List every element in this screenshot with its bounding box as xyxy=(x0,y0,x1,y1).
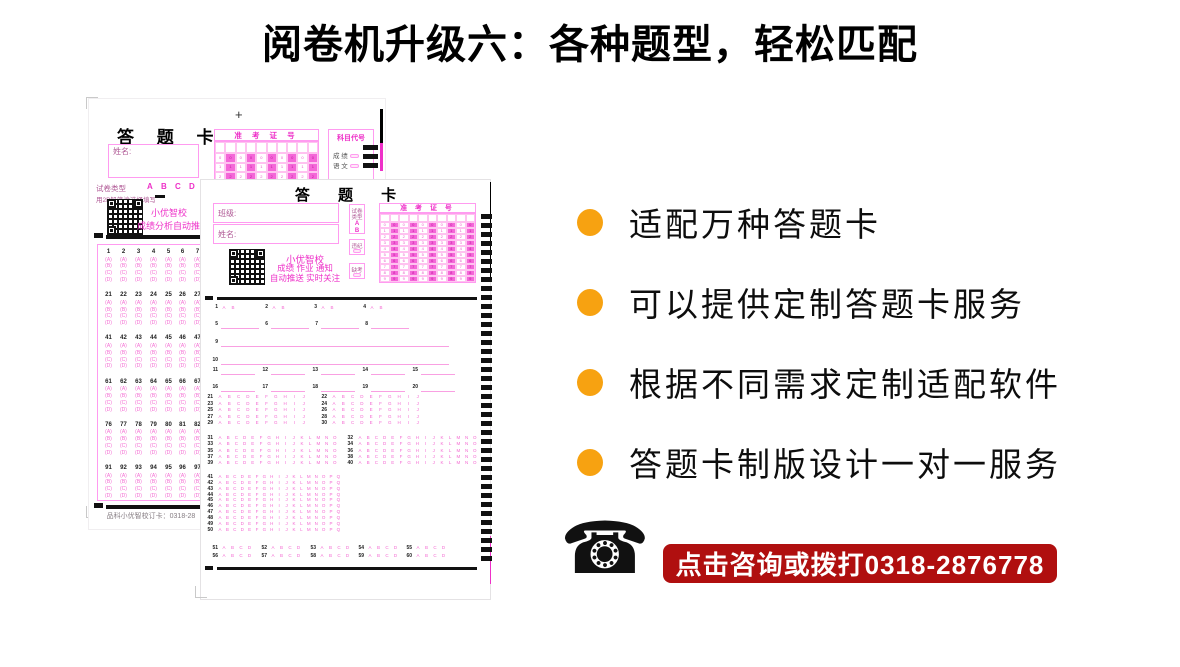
bubble-letter: G xyxy=(386,408,394,413)
bubble-letter: Q xyxy=(334,487,342,492)
bubble-letter: (A) xyxy=(132,387,145,392)
bubble-letter: (A) xyxy=(132,344,145,349)
bubble-letter: (C) xyxy=(132,444,145,449)
bubble-letter: (C) xyxy=(117,314,130,319)
bubble-letter: J xyxy=(300,421,308,426)
bubble-letter: D xyxy=(358,415,366,420)
bubble-letter: (C) xyxy=(117,444,130,449)
bubble-letter: A xyxy=(216,461,224,466)
bubble-letter: I xyxy=(282,442,290,447)
bubble-letter: L xyxy=(446,436,454,441)
bubble-letter: C xyxy=(372,461,380,466)
bubble-letter: Q xyxy=(334,475,342,480)
timing-mark xyxy=(363,163,378,168)
bubble-letter: I xyxy=(422,442,430,447)
ticket-digit-cell xyxy=(215,142,225,153)
paper-type-option: A xyxy=(147,183,153,191)
bubble-letter: E xyxy=(367,408,375,413)
bubble-letter: J xyxy=(414,415,422,420)
bubble-letter: H xyxy=(413,442,421,447)
bubble-letter: A xyxy=(356,449,364,454)
qr-finder xyxy=(134,199,143,208)
bubble-letter: D xyxy=(244,415,252,420)
question-number: 26 xyxy=(176,292,189,298)
bubble-letter: I xyxy=(290,421,298,426)
bubble-letter: (C) xyxy=(147,358,160,363)
bubble-letter: (B) xyxy=(117,394,130,399)
question-number: 46 xyxy=(176,335,189,341)
question-number: 14 xyxy=(359,368,368,373)
bubble-letter: D xyxy=(392,554,400,559)
bubble-letter: (B) xyxy=(162,264,175,269)
bubble-letter: E xyxy=(389,436,397,441)
question-number: 43 xyxy=(132,335,145,341)
bubble-letter: G xyxy=(405,449,413,454)
bubble-letter: K xyxy=(298,461,306,466)
bubble-letter: (B) xyxy=(162,308,175,313)
question-number: 52 xyxy=(258,546,267,551)
bubble-letter: (C) xyxy=(162,271,175,276)
bubble-letter: A xyxy=(366,554,374,559)
question-number: 20 xyxy=(409,385,418,390)
bubble-letter: G xyxy=(265,455,273,460)
bubble-letter: (B) xyxy=(162,394,175,399)
bubble-letter: I xyxy=(282,461,290,466)
bubble-letter: G xyxy=(386,402,394,407)
qr-caption: 小优智校 xyxy=(151,206,187,219)
bubble-letter: N xyxy=(463,461,471,466)
question-number: 7 xyxy=(309,322,318,327)
bubble-letter: K xyxy=(298,436,306,441)
answer-blank-line xyxy=(421,374,455,375)
bullet-dot-icon xyxy=(577,209,603,236)
ticket-number-header: 准 考 证 号 xyxy=(214,129,319,141)
bubble-letter: (B) xyxy=(102,480,115,485)
bubble-letter: E xyxy=(253,408,261,413)
bubble-letter: H xyxy=(395,408,403,413)
bubble-letter: A xyxy=(330,408,338,413)
bubble-letter: D xyxy=(244,402,252,407)
question-number: 95 xyxy=(162,465,175,471)
bubble-letter: Q xyxy=(334,510,342,515)
answer-blank-line xyxy=(221,346,449,347)
subject-bubble xyxy=(350,164,359,169)
feature-list: 适配万种答题卡 可以提供定制答题卡服务 根据不同需求定制适配软件 答题卡制版设计… xyxy=(577,205,1061,525)
bubble-letter: F xyxy=(397,442,405,447)
question-number: 79 xyxy=(147,422,160,428)
bubble-letter: (D) xyxy=(162,278,175,283)
bubble-letter: (A) xyxy=(162,430,175,435)
answer-blank-line xyxy=(221,364,449,365)
bubble-letter: I xyxy=(290,395,298,400)
bubble-letter: F xyxy=(263,421,271,426)
paper-type-option: C xyxy=(175,183,181,191)
bubble-letter: (C) xyxy=(132,271,145,276)
answer-blank-line xyxy=(371,374,405,375)
question-number: 12 xyxy=(259,368,268,373)
question-number: 15 xyxy=(409,368,418,373)
bubble-letter: D xyxy=(241,442,249,447)
bubble-letter: D xyxy=(358,408,366,413)
question-number: 91 xyxy=(102,465,115,471)
bubble-letter: (C) xyxy=(102,401,115,406)
bubble-letter: D xyxy=(241,455,249,460)
bubble-letter: I xyxy=(290,408,298,413)
bubble-letter: Q xyxy=(334,528,342,533)
bubble-letter: E xyxy=(249,442,257,447)
ticket-digit-cell: 1 xyxy=(308,163,318,173)
bubble-letter: C xyxy=(349,402,357,407)
bubble-letter: (D) xyxy=(102,451,115,456)
bubble-letter: (B) xyxy=(102,394,115,399)
bubble-letter: O xyxy=(471,442,479,447)
bubble-letter: D xyxy=(344,554,352,559)
bubble-letter: D xyxy=(295,546,303,551)
bubble-letter: (B) xyxy=(176,351,189,356)
bubble-letter: F xyxy=(257,436,265,441)
bubble-letter: (C) xyxy=(132,487,145,492)
bubble-letter: B xyxy=(375,546,383,551)
paper-type-option: B xyxy=(161,183,167,191)
bubble-letter: F xyxy=(377,402,385,407)
question-number: 38 xyxy=(344,455,353,460)
bubble-letter: (A) xyxy=(176,474,189,479)
bubble-letter: (C) xyxy=(102,487,115,492)
bubble-letter: J xyxy=(430,442,438,447)
bubble-letter: I xyxy=(404,421,412,426)
bubble-letter: (B) xyxy=(102,264,115,269)
bubble-letter: (D) xyxy=(117,494,130,499)
bubble-letter: A xyxy=(269,546,277,551)
bubble-letter: Q xyxy=(334,481,342,486)
bubble-letter: F xyxy=(263,408,271,413)
bubble-letter: K xyxy=(438,442,446,447)
bubble-letter: B xyxy=(224,461,232,466)
bubble-letter: (D) xyxy=(147,494,160,499)
bubble-letter: (C) xyxy=(162,314,175,319)
bubble-letter: (D) xyxy=(102,364,115,369)
bubble-letter: A xyxy=(216,421,224,426)
bubble-letter: (D) xyxy=(147,321,160,326)
telephone-icon[interactable]: ☎ xyxy=(560,512,650,584)
bubble-letter: (B) xyxy=(176,394,189,399)
ticket-digit-cell: 1 xyxy=(246,163,256,173)
ticket-digit-cell: 0 xyxy=(256,153,266,163)
bubble-letter: (B) xyxy=(147,394,160,399)
bubble-letter: (D) xyxy=(117,321,130,326)
bubble-letter: E xyxy=(367,415,375,420)
question-number: 93 xyxy=(132,465,145,471)
bubble-letter: K xyxy=(438,436,446,441)
bubble-letter: O xyxy=(471,455,479,460)
bubble-letter: N xyxy=(323,455,331,460)
bubble-letter: D xyxy=(381,436,389,441)
question-number: 56 xyxy=(209,554,218,559)
answer-blank-line xyxy=(321,391,355,392)
ticket-digit-cell: 1 xyxy=(236,163,246,173)
question-number: 94 xyxy=(147,465,160,471)
bubble-letter: J xyxy=(300,402,308,407)
bubble-letter: N xyxy=(323,436,331,441)
bubble-letter: M xyxy=(454,436,462,441)
bubble-letter: C xyxy=(349,421,357,426)
bubble-letter: J xyxy=(430,436,438,441)
timing-mark xyxy=(363,145,378,150)
bubble-letter: C xyxy=(372,455,380,460)
bubble-letter: D xyxy=(344,546,352,551)
question-number: 6 xyxy=(259,322,268,327)
bubble-letter: (D) xyxy=(102,408,115,413)
bubble-letter: D xyxy=(358,395,366,400)
question-number: 65 xyxy=(162,379,175,385)
bubble-letter: A xyxy=(216,402,224,407)
bubble-letter: D xyxy=(358,402,366,407)
question-number: 13 xyxy=(309,368,318,373)
list-item: 可以提供定制答题卡服务 xyxy=(577,285,1061,319)
bubble-letter: B xyxy=(364,461,372,466)
bubble-letter: D xyxy=(440,546,448,551)
ticket-digit-cell xyxy=(277,142,287,153)
bubble-letter: (C) xyxy=(147,444,160,449)
bubble-letter: C xyxy=(286,546,294,551)
bubble-letter: H xyxy=(273,436,281,441)
bubble-letter: A xyxy=(216,455,224,460)
question-number: 1 xyxy=(102,249,115,255)
list-item: 根据不同需求定制适配软件 xyxy=(577,365,1061,399)
question-number: 23 xyxy=(204,402,213,407)
bubble-letter: F xyxy=(257,449,265,454)
question-number: 96 xyxy=(176,465,189,471)
bubble-letter: (B) xyxy=(117,264,130,269)
bubble-letter: I xyxy=(282,436,290,441)
bubble-letter: (D) xyxy=(132,408,145,413)
bubble-letter: J xyxy=(430,455,438,460)
bubble-letter: (D) xyxy=(176,451,189,456)
ticket-digit-cell: 1 xyxy=(297,163,307,173)
bubble-letter: B xyxy=(278,554,286,559)
question-number: 19 xyxy=(359,385,368,390)
bubble-letter: A xyxy=(366,546,374,551)
bubble-letter: (C) xyxy=(117,487,130,492)
bubble-letter: (B) xyxy=(162,351,175,356)
bubble-letter: (A) xyxy=(117,430,130,435)
bubble-letter: A xyxy=(220,306,228,311)
bubble-letter: (D) xyxy=(132,278,145,283)
bubble-letter: (D) xyxy=(147,278,160,283)
bubble-letter: (A) xyxy=(162,258,175,263)
bubble-letter: I xyxy=(290,402,298,407)
bubble-letter: D xyxy=(246,554,254,559)
bubble-letter: Q xyxy=(334,516,342,521)
bubble-letter: J xyxy=(290,449,298,454)
bubble-letter: H xyxy=(395,421,403,426)
bubble-letter: F xyxy=(263,395,271,400)
question-number: 5 xyxy=(162,249,175,255)
bubble-letter: C xyxy=(235,421,243,426)
bubble-letter: M xyxy=(454,442,462,447)
bubble-letter: B xyxy=(339,408,347,413)
question-number: 2 xyxy=(117,249,130,255)
bubble-letter: E xyxy=(367,395,375,400)
bubble-letter: (A) xyxy=(162,387,175,392)
bubble-letter: G xyxy=(405,455,413,460)
question-number: 60 xyxy=(403,554,412,559)
question-number: 63 xyxy=(132,379,145,385)
bubble-letter: B xyxy=(364,442,372,447)
bubble-letter: (C) xyxy=(132,314,145,319)
bubble-letter: (A) xyxy=(176,430,189,435)
question-number: 66 xyxy=(176,379,189,385)
question-number: 24 xyxy=(318,402,327,407)
question-number: 27 xyxy=(204,415,213,420)
bubble-letter: M xyxy=(454,449,462,454)
ticket-digit-cell xyxy=(308,142,318,153)
bubble-letter: E xyxy=(249,461,257,466)
bubble-letter: H xyxy=(273,449,281,454)
bubble-letter: (B) xyxy=(176,308,189,313)
answer-blank-line xyxy=(271,391,305,392)
bubble-letter: O xyxy=(471,449,479,454)
ticket-digit-cell: 1 xyxy=(287,163,297,173)
question-number: 4 xyxy=(147,249,160,255)
bubble-letter: B xyxy=(225,408,233,413)
bubble-letter: (B) xyxy=(176,437,189,442)
bubble-letter: E xyxy=(367,402,375,407)
bubble-letter: J xyxy=(300,415,308,420)
bubble-letter: (B) xyxy=(132,480,145,485)
bubble-letter: M xyxy=(314,442,322,447)
bubble-letter: N xyxy=(463,455,471,460)
timing-mark xyxy=(363,154,378,159)
bubble-letter: (D) xyxy=(176,494,189,499)
bubble-letter: J xyxy=(290,436,298,441)
bubble-letter: H xyxy=(413,449,421,454)
contact-banner-text: 点击咨询或拨打0318-2876778 xyxy=(676,545,1045,582)
bubble-letter: M xyxy=(454,455,462,460)
bubble-letter: B xyxy=(364,449,372,454)
bubble-letter: (A) xyxy=(102,474,115,479)
edge-registration-bar xyxy=(380,109,383,171)
bubble-letter: C xyxy=(372,442,380,447)
bubble-letter: A xyxy=(318,546,326,551)
bubble-letter: F xyxy=(263,415,271,420)
question-number: 37 xyxy=(204,455,213,460)
bubble-letter: (D) xyxy=(162,364,175,369)
question-number: 10 xyxy=(209,358,218,363)
bubble-letter: D xyxy=(241,449,249,454)
bubble-letter: (D) xyxy=(117,278,130,283)
answer-blank-line xyxy=(271,374,305,375)
bubble-letter: F xyxy=(377,421,385,426)
bubble-letter: J xyxy=(290,455,298,460)
bubble-letter: B xyxy=(229,306,237,311)
bubble-letter: F xyxy=(397,449,405,454)
bubble-letter: F xyxy=(397,436,405,441)
bubble-letter: B xyxy=(423,554,431,559)
list-item: 答题卡制版设计一对一服务 xyxy=(577,445,1061,479)
feature-text: 适配万种答题卡 xyxy=(629,198,881,246)
question-number: 23 xyxy=(132,292,145,298)
bubble-letter: D xyxy=(381,449,389,454)
ticket-digit-cell: 0 xyxy=(287,153,297,163)
question-number: 16 xyxy=(209,385,218,390)
bubble-letter: (B) xyxy=(102,308,115,313)
bubble-letter: D xyxy=(244,395,252,400)
ticket-digit-cell: 0 xyxy=(236,153,246,163)
bubble-letter: (A) xyxy=(147,344,160,349)
bubble-letter: (A) xyxy=(102,344,115,349)
bubble-letter: C xyxy=(235,395,243,400)
bubble-letter: D xyxy=(392,546,400,551)
bubble-letter: (C) xyxy=(176,314,189,319)
question-number: 22 xyxy=(318,395,327,400)
bubble-letter: (C) xyxy=(162,444,175,449)
contact-banner[interactable]: 点击咨询或拨打0318-2876778 xyxy=(663,544,1057,583)
bubble-letter: (A) xyxy=(147,387,160,392)
bubble-letter: F xyxy=(377,408,385,413)
bubble-letter: (A) xyxy=(132,430,145,435)
bubble-letter: (D) xyxy=(176,364,189,369)
question-number: 41 xyxy=(102,335,115,341)
bubble-letter: (C) xyxy=(176,444,189,449)
bubble-letter: B xyxy=(364,436,372,441)
bubble-letter: (D) xyxy=(147,364,160,369)
bubble-letter: C xyxy=(235,415,243,420)
bubble-letter: K xyxy=(438,455,446,460)
bubble-letter: (C) xyxy=(162,358,175,363)
bubble-letter: A xyxy=(270,306,278,311)
bubble-letter: C xyxy=(237,554,245,559)
bubble-letter: I xyxy=(282,455,290,460)
bubble-letter: (B) xyxy=(162,437,175,442)
bubble-letter: A xyxy=(330,421,338,426)
bubble-letter: J xyxy=(414,421,422,426)
bubble-letter: (D) xyxy=(176,408,189,413)
bubble-letter: E xyxy=(389,461,397,466)
bubble-letter: E xyxy=(253,395,261,400)
bubble-letter: (B) xyxy=(176,264,189,269)
bubble-letter: (D) xyxy=(117,451,130,456)
bubble-letter: B xyxy=(327,554,335,559)
bubble-letter: (B) xyxy=(147,437,160,442)
bubble-letter: (B) xyxy=(117,308,130,313)
ticket-digit-cell: 0 xyxy=(297,153,307,163)
answer-blank-line xyxy=(371,328,409,329)
bubble-letter: (B) xyxy=(117,437,130,442)
bubble-letter: C xyxy=(431,546,439,551)
page-title: 阅卷机升级六：各种题型，轻松匹配 xyxy=(0,12,1180,70)
bubble-letter: B xyxy=(225,415,233,420)
ticket-digit-cell xyxy=(225,142,235,153)
question-number: 64 xyxy=(147,379,160,385)
bubble-letter: H xyxy=(413,455,421,460)
bubble-letter: L xyxy=(306,461,314,466)
feature-text: 可以提供定制答题卡服务 xyxy=(629,278,1025,326)
bubble-letter: (B) xyxy=(147,351,160,356)
bubble-letter: O xyxy=(471,461,479,466)
bubble-letter: C xyxy=(286,554,294,559)
bubble-letter: (D) xyxy=(162,494,175,499)
bubble-letter: (C) xyxy=(147,487,160,492)
answer-blank-line xyxy=(271,328,309,329)
bubble-letter: (A) xyxy=(102,387,115,392)
bubble-letter: N xyxy=(323,461,331,466)
question-number: 43 xyxy=(204,487,213,492)
bubble-letter: (D) xyxy=(117,364,130,369)
qr-caption: 成绩分析自动推送 xyxy=(137,219,209,232)
bubble-letter: (C) xyxy=(117,271,130,276)
question-number: 26 xyxy=(318,408,327,413)
